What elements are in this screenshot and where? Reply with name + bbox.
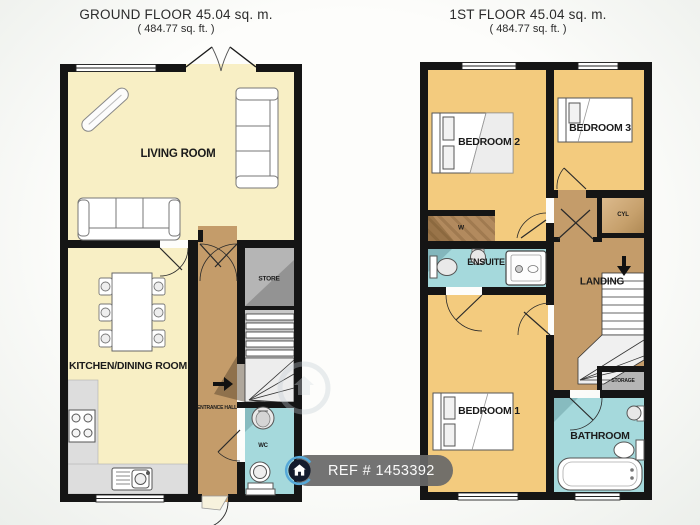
ground-floor-plan: LIVING ROOM KITCHEN/DINING ROOM ENTRANCE…	[56, 58, 304, 512]
decor-object	[79, 85, 131, 133]
dining-table	[112, 273, 152, 351]
store-shading	[245, 260, 294, 306]
sofa-right	[236, 88, 278, 188]
ensuite-toilet	[430, 256, 457, 278]
landing-label: LANDING	[580, 277, 624, 288]
interior-doors-first	[446, 168, 602, 430]
wardrobe-label: W	[458, 225, 464, 232]
first-floor-title-block: 1ST FLOOR 45.04 sq. m. ( 484.77 sq. ft. …	[404, 7, 652, 35]
wc-sink	[252, 407, 274, 429]
staircase	[245, 314, 294, 402]
first-floor-title: 1ST FLOOR 45.04 sq. m.	[404, 7, 652, 22]
ref-number: REF # 1453392	[328, 463, 435, 479]
bedroom3-label: BEDROOM 3	[569, 122, 631, 134]
store-label: STORE	[258, 276, 279, 283]
ref-badge[interactable]: REF # 1453392	[292, 455, 453, 486]
ground-floor-title: GROUND FLOOR 45.04 sq. m.	[52, 7, 300, 22]
first-floor-subtitle: ( 484.77 sq. ft. )	[404, 23, 652, 35]
kitchen-sink	[112, 468, 152, 490]
ground-floor-subtitle: ( 484.77 sq. ft. )	[52, 23, 300, 35]
bathroom-toilet	[614, 440, 644, 460]
kitchen-dining-label: KITCHEN/DINING ROOM	[69, 360, 187, 372]
first-floor-plan: BEDROOM 2 BEDROOM 3 ENSUITE LANDING BEDR…	[418, 58, 656, 512]
bathroom-label: BATHROOM	[570, 430, 629, 442]
bed-double-bedroom1	[433, 393, 513, 450]
entrance-door-leaf	[202, 496, 228, 510]
storage-label: STORAGE	[611, 378, 634, 384]
bath-tub	[558, 458, 642, 490]
bedroom2-label: BEDROOM 2	[458, 136, 520, 148]
bathroom-sink	[627, 406, 644, 421]
wc-label: WC	[258, 443, 268, 449]
ensuite-label: ENSUITE	[467, 257, 505, 267]
hob	[69, 410, 95, 442]
floorplan-canvas: GROUND FLOOR 45.04 sq. m. ( 484.77 sq. f…	[0, 0, 700, 525]
ground-floor-title-block: GROUND FLOOR 45.04 sq. m. ( 484.77 sq. f…	[52, 7, 300, 35]
entrance-hall-label: ENTRANCE HALL	[197, 405, 237, 411]
sofa-bottom	[78, 198, 180, 240]
ensuite-shower	[506, 251, 546, 285]
living-room-label: LIVING ROOM	[140, 148, 215, 160]
wc-toilet	[246, 462, 275, 495]
cyl-label: CYL	[617, 212, 628, 218]
bed-single-bedroom3	[558, 98, 632, 142]
agency-logo-icon	[282, 453, 317, 488]
bedroom1-label: BEDROOM 1	[458, 405, 520, 417]
